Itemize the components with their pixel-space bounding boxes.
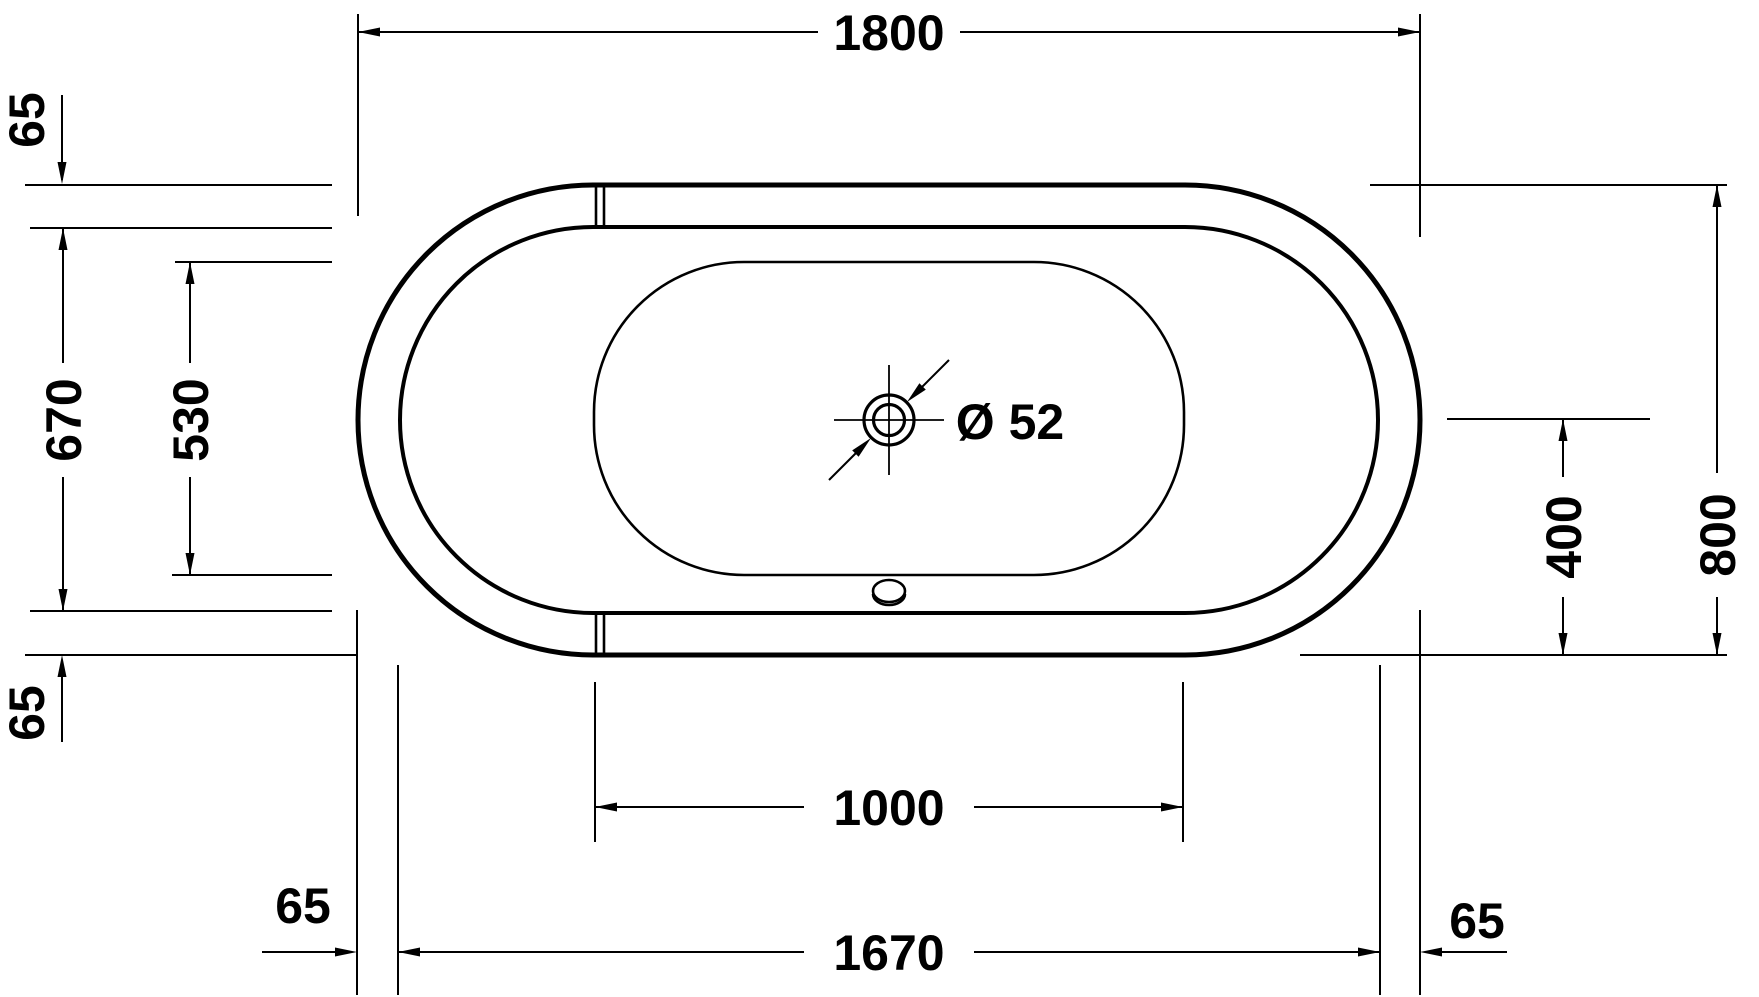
bathtub-technical-drawing: Ø 52 1800 65 670 530 [0,0,1759,997]
dim-rim-offset-top-left: 65 [0,92,67,184]
drawing-sheet: Ø 52 1800 65 670 530 [0,0,1759,997]
dim-label-rim-offset-right-end: 65 [1449,893,1505,949]
dim-label-rim-offset-top-left: 65 [0,92,55,148]
dim-label-drain-from-bottom-edge: 400 [1536,495,1592,578]
dim-inner-opening-width: 670 [36,228,92,611]
dim-label-overall-length: 1800 [833,5,944,61]
dim-basin-floor-width: 530 [163,262,219,575]
dim-overall-width: 800 [1690,185,1746,655]
dim-label-overall-width: 800 [1690,493,1746,576]
dim-rim-offset-right-end: 65 [1420,893,1507,957]
right-extension-lines [1300,185,1727,655]
dim-inner-opening-length: 1670 [398,925,1380,981]
dim-overall-length: 1800 [358,5,1420,237]
dim-rim-offset-left-end: 65 [262,878,357,957]
overflow-hole [873,580,905,605]
rim-joint-tick-top [596,186,604,226]
dim-label-inner-opening-length: 1670 [833,925,944,981]
dim-label-inner-opening-width: 670 [36,378,92,461]
dim-label-basin-floor-length: 1000 [833,780,944,836]
dim-drain-from-bottom-edge: 400 [1536,419,1592,655]
dim-label-rim-offset-left-end: 65 [275,878,331,934]
dim-basin-floor-length: 1000 [595,780,1183,836]
rim-joint-tick-bottom [596,614,604,654]
dim-label-basin-floor-width: 530 [163,378,219,461]
drain-symbol: Ø 52 [829,360,1064,480]
dim-label-drain-diameter: Ø 52 [956,394,1064,450]
dim-rim-offset-bottom-left: 65 [0,655,67,742]
dim-label-rim-offset-bottom-left: 65 [0,685,55,741]
